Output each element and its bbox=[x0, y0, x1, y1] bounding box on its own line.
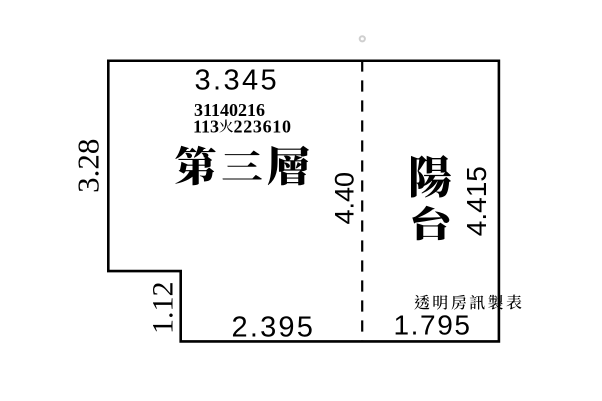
svg-text:4.415: 4.415 bbox=[461, 166, 492, 236]
svg-text:223610: 223610 bbox=[234, 117, 292, 137]
svg-text:3.345: 3.345 bbox=[195, 65, 280, 97]
svg-text:113: 113 bbox=[193, 117, 219, 137]
svg-text:1.12: 1.12 bbox=[147, 282, 180, 335]
svg-text:3.28: 3.28 bbox=[71, 139, 106, 193]
svg-text:2.395: 2.395 bbox=[232, 312, 316, 344]
svg-text:4.40: 4.40 bbox=[330, 172, 360, 225]
svg-text:1.795: 1.795 bbox=[394, 310, 472, 341]
